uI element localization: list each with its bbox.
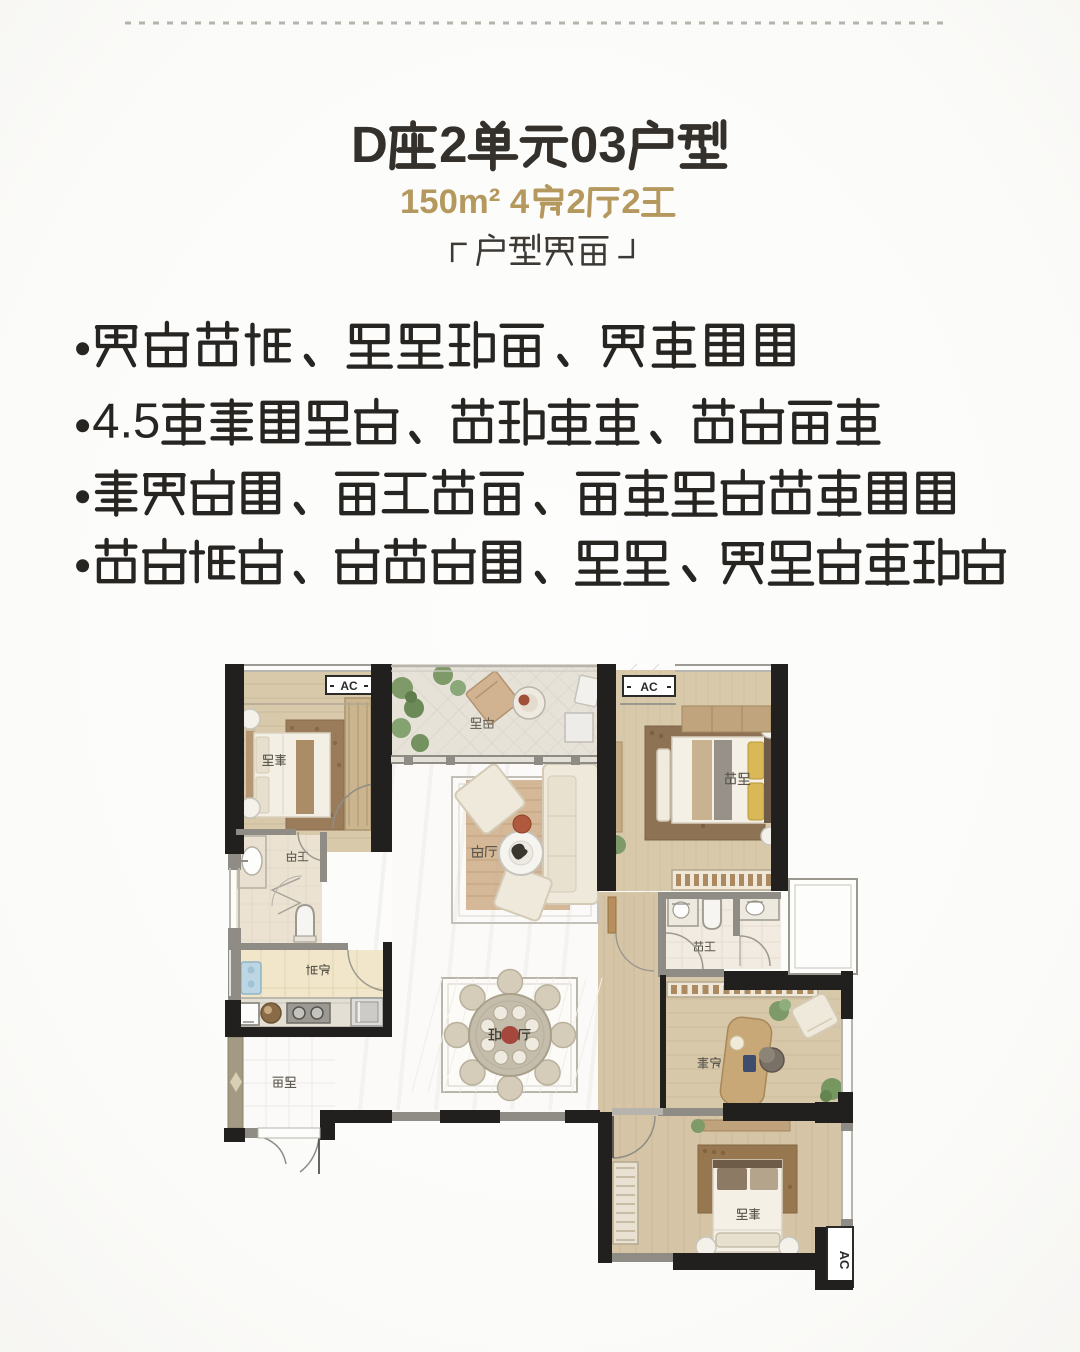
- svg-text:AC: AC: [340, 679, 358, 693]
- svg-text:2: 2: [621, 183, 640, 221]
- svg-text:4.5: 4.5: [92, 394, 160, 448]
- svg-text:2: 2: [439, 116, 467, 173]
- svg-text:AC: AC: [837, 1251, 852, 1270]
- svg-text:150m² 4: 150m² 4: [400, 183, 530, 221]
- svg-text:2: 2: [567, 183, 586, 221]
- svg-text:03: 03: [570, 116, 627, 173]
- svg-text:AC: AC: [640, 680, 658, 694]
- svg-text:D: D: [351, 116, 388, 173]
